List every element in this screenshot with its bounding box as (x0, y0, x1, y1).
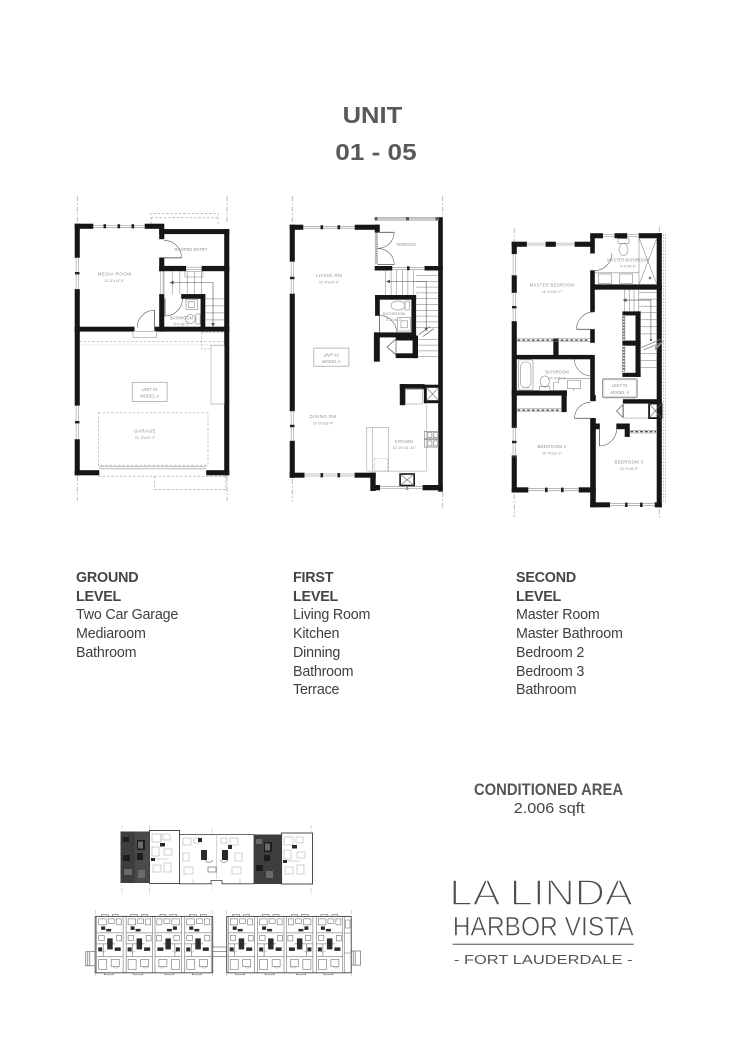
svg-text:LIVING RM: LIVING RM (316, 273, 342, 278)
svg-text:11'-0"x14'-5": 11'-0"x14'-5" (104, 279, 125, 283)
svg-text:GARAGE: GARAGE (134, 428, 156, 433)
svg-text:UNIT: UNIT (343, 102, 403, 128)
svg-text:2.006 sqft: 2.006 sqft (514, 800, 586, 817)
svg-text:5'-0"x8'-0": 5'-0"x8'-0" (174, 322, 190, 326)
svg-text:11'-9"x19'-2": 11'-9"x19'-2" (319, 281, 340, 285)
svg-text:MEDIA ROOM: MEDIA ROOM (98, 272, 132, 277)
svg-text:BEDROOM 3: BEDROOM 3 (614, 459, 643, 464)
svg-text:11'-4"x11'-2": 11'-4"x11'-2" (542, 451, 563, 455)
svg-text:10'-4"x5'-0": 10'-4"x5'-0" (548, 376, 567, 380)
svg-text:MODEL A: MODEL A (610, 390, 629, 395)
svg-text:01 - 05: 01 - 05 (335, 139, 416, 165)
svg-text:MASTER BATHROOM: MASTER BATHROOM (607, 257, 649, 262)
svg-text:MASTER BEDROOM: MASTER BEDROOM (530, 283, 575, 288)
svg-text:21'-3"x20'-1": 21'-3"x20'-1" (135, 436, 156, 440)
svg-text:9'-0"x5'-0": 9'-0"x5'-0" (620, 264, 637, 268)
svg-text:10'-5"x16'-4": 10'-5"x16'-4" (313, 422, 334, 426)
svg-text:UNIT #1: UNIT #1 (324, 352, 340, 357)
svg-text:MODEL A: MODEL A (140, 394, 159, 399)
svg-text:BATHROOM: BATHROOM (170, 316, 194, 321)
svg-text:12'-0"x8'-9": 12'-0"x8'-9" (620, 467, 639, 471)
svg-text:DINING RM: DINING RM (309, 414, 336, 419)
svg-text:MODEL A: MODEL A (322, 359, 341, 364)
svg-text:ROOFED ENTRY: ROOFED ENTRY (174, 247, 207, 252)
svg-text:TERRACE: TERRACE (396, 242, 416, 247)
svg-text:UNIT #1: UNIT #1 (612, 383, 628, 388)
svg-text:BATHROOM: BATHROOM (545, 370, 569, 375)
svg-text:10'-10"x11'-10": 10'-10"x11'-10" (392, 446, 416, 450)
svg-text:HARBOR VISTA: HARBOR VISTA (453, 912, 634, 942)
svg-text:11'-4"x22'-7": 11'-4"x22'-7" (542, 290, 563, 294)
svg-text:5'-2"x5'-2": 5'-2"x5'-2" (386, 318, 402, 322)
svg-text:- FORT LAUDERDALE -: - FORT LAUDERDALE - (454, 952, 633, 967)
svg-text:KITCHEN: KITCHEN (395, 439, 413, 444)
svg-text:CONDITIONED AREA: CONDITIONED AREA (474, 780, 623, 799)
svg-text:BEDROOM 2: BEDROOM 2 (537, 444, 566, 449)
svg-text:UNIT #1: UNIT #1 (142, 387, 158, 392)
svg-text:BATHROOM: BATHROOM (383, 311, 406, 316)
svg-text:LA LINDA: LA LINDA (449, 872, 633, 913)
